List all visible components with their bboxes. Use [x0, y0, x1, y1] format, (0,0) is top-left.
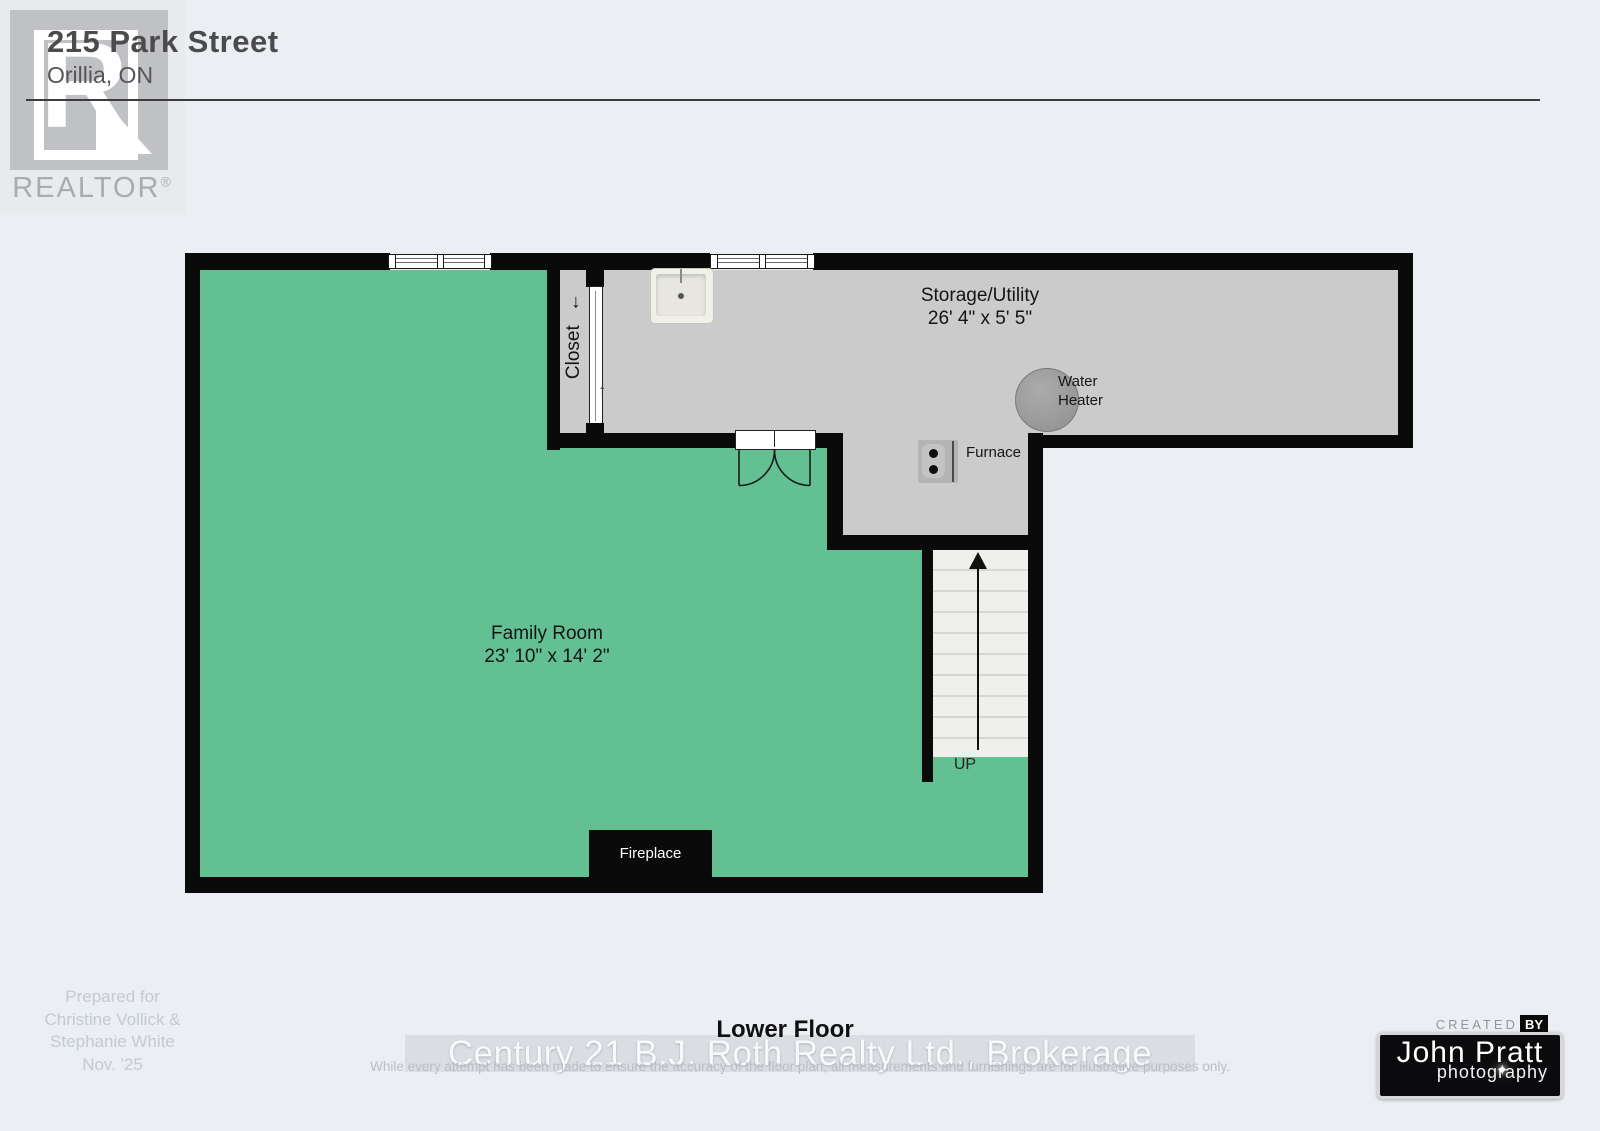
window-end-cap	[807, 255, 814, 268]
window-pane	[396, 255, 437, 268]
double-door-frame	[735, 430, 816, 450]
storage-utility-label: Storage/Utility 26' 4" x 5' 5"	[880, 284, 1080, 330]
prepared-for-line: Christine Vollick &	[15, 1009, 210, 1032]
fireplace: Fireplace	[589, 830, 712, 878]
window-icon	[388, 254, 492, 269]
stairs-up-label: UP	[935, 756, 995, 774]
window-pane	[718, 255, 759, 268]
laundry-sink-icon	[650, 268, 714, 324]
furnace-icon	[918, 440, 958, 483]
wall-closet-west	[547, 253, 560, 450]
wall-stairwell-west	[922, 548, 933, 782]
closet-sliding-door-icon	[589, 286, 603, 426]
photography-badge: John Pratt photography ✦	[1377, 1032, 1563, 1099]
closet-name: Closet	[563, 325, 584, 379]
double-door-swing-icon	[737, 448, 812, 488]
double-door-meeting-stile	[774, 431, 775, 447]
furnace-edge-line	[952, 441, 954, 482]
prepared-for-line: Prepared for	[15, 986, 210, 1009]
disclaimer-text: While every attempt has been made to ens…	[300, 1059, 1300, 1074]
prepared-for-line: Stephanie White	[15, 1031, 210, 1054]
wall-top-left	[185, 253, 390, 270]
sink-faucet	[680, 269, 682, 283]
storage-utility-name: Storage/Utility	[880, 284, 1080, 307]
wall-family-east-upper	[827, 433, 843, 550]
stairs-up-arrow-line	[977, 566, 979, 750]
wall-storage-right	[1398, 253, 1413, 448]
wall-stairwell-east	[1028, 433, 1043, 877]
wall-storage-lower-bottom	[827, 535, 1043, 550]
storage-utility-dimensions: 26' 4" x 5' 5"	[880, 307, 1080, 330]
prepared-for-line: Nov. '25	[15, 1054, 210, 1077]
water-heater-label: Water Heater	[1058, 372, 1116, 410]
window-pane	[766, 255, 807, 268]
closet-door-direction-arrow-icon: ↑	[598, 381, 607, 401]
window-end-cap	[711, 255, 718, 268]
staircase	[933, 550, 1028, 757]
created-text: CREATED	[1436, 1017, 1518, 1032]
address-subtitle: Orillia, ON	[47, 62, 153, 89]
family-room-label: Family Room 23' 10" x 14' 2"	[447, 622, 647, 668]
prepared-for-block: Prepared for Christine Vollick & Stephan…	[15, 986, 210, 1076]
fireplace-label: Fireplace	[620, 845, 682, 862]
closet-door-stub-top	[586, 270, 604, 287]
wall-bottom	[185, 877, 1043, 893]
window-mullion	[759, 255, 766, 268]
closet-label: Closet ←	[562, 276, 584, 396]
furnace-knob	[929, 465, 938, 474]
closet-direction-arrow-icon: ←	[563, 293, 584, 320]
window-end-cap	[484, 255, 491, 268]
window-icon	[710, 254, 815, 269]
realtor-logo-triangle	[96, 92, 152, 154]
closet-door-track-line	[595, 291, 596, 421]
wall-storage-bottom-right	[1028, 435, 1413, 448]
address-title: 215 Park Street	[47, 24, 279, 60]
furnace-label: Furnace	[966, 444, 1021, 461]
sparkle-icon: ✦	[1496, 1061, 1509, 1079]
window-mullion	[437, 255, 444, 268]
family-room-name: Family Room	[447, 622, 647, 645]
family-room-dimensions: 23' 10" x 14' 2"	[447, 645, 647, 668]
registered-trademark-symbol: ®	[160, 173, 172, 189]
stairs-up-arrow-head-icon	[969, 552, 987, 569]
floor-title: Lower Floor	[585, 1016, 985, 1044]
window-end-cap	[389, 255, 396, 268]
sink-drain	[678, 293, 684, 299]
floor-plan-page: R REALTOR® 215 Park Street Orillia, ON F…	[0, 0, 1600, 1131]
wall-family-storage-left	[547, 433, 737, 448]
header-rule	[26, 99, 1540, 101]
by-text: BY	[1520, 1015, 1548, 1034]
furnace-knob	[929, 449, 938, 458]
realtor-wordmark: REALTOR®	[0, 172, 185, 205]
wall-top-right	[813, 253, 1413, 270]
realtor-wordmark-text: REALTOR	[12, 172, 160, 204]
wall-left	[185, 253, 200, 893]
closet-door-stub-bottom	[586, 423, 604, 439]
window-pane	[444, 255, 485, 268]
